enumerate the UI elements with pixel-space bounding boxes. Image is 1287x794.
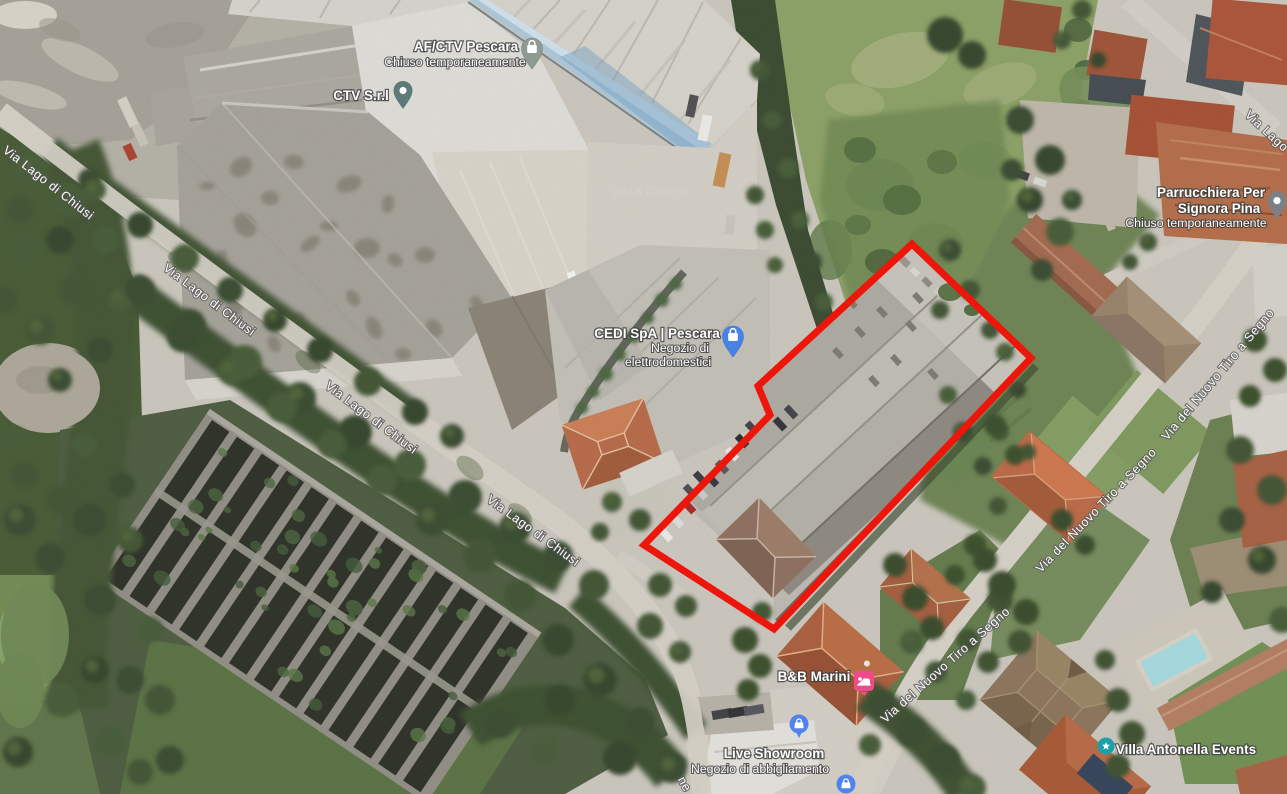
svg-text:AF/CTV Pescara: AF/CTV Pescara (414, 39, 519, 54)
svg-text:Chiuso temporaneamente: Chiuso temporaneamente (1125, 216, 1267, 230)
svg-text:elettrodomestici: elettrodomestici (625, 355, 711, 369)
svg-text:B&B Marini: B&B Marini (778, 669, 851, 684)
svg-text:Chiuso temporaneamente: Chiuso temporaneamente (384, 55, 526, 69)
svg-text:Parrucchiera Per: Parrucchiera Per (1157, 185, 1266, 200)
svg-text:CEDI SpA | Pescara: CEDI SpA | Pescara (594, 326, 720, 341)
svg-text:Negozio di abbigliamento: Negozio di abbigliamento (691, 762, 829, 776)
svg-text:CTV S.r.l: CTV S.r.l (333, 88, 389, 103)
svg-text:Villa Antonella Events: Villa Antonella Events (1116, 742, 1256, 757)
svg-text:Signora Pina: Signora Pina (1178, 201, 1261, 216)
svg-text:Negozio di: Negozio di (651, 341, 709, 355)
svg-text:Live Showroom: Live Showroom (724, 746, 825, 761)
